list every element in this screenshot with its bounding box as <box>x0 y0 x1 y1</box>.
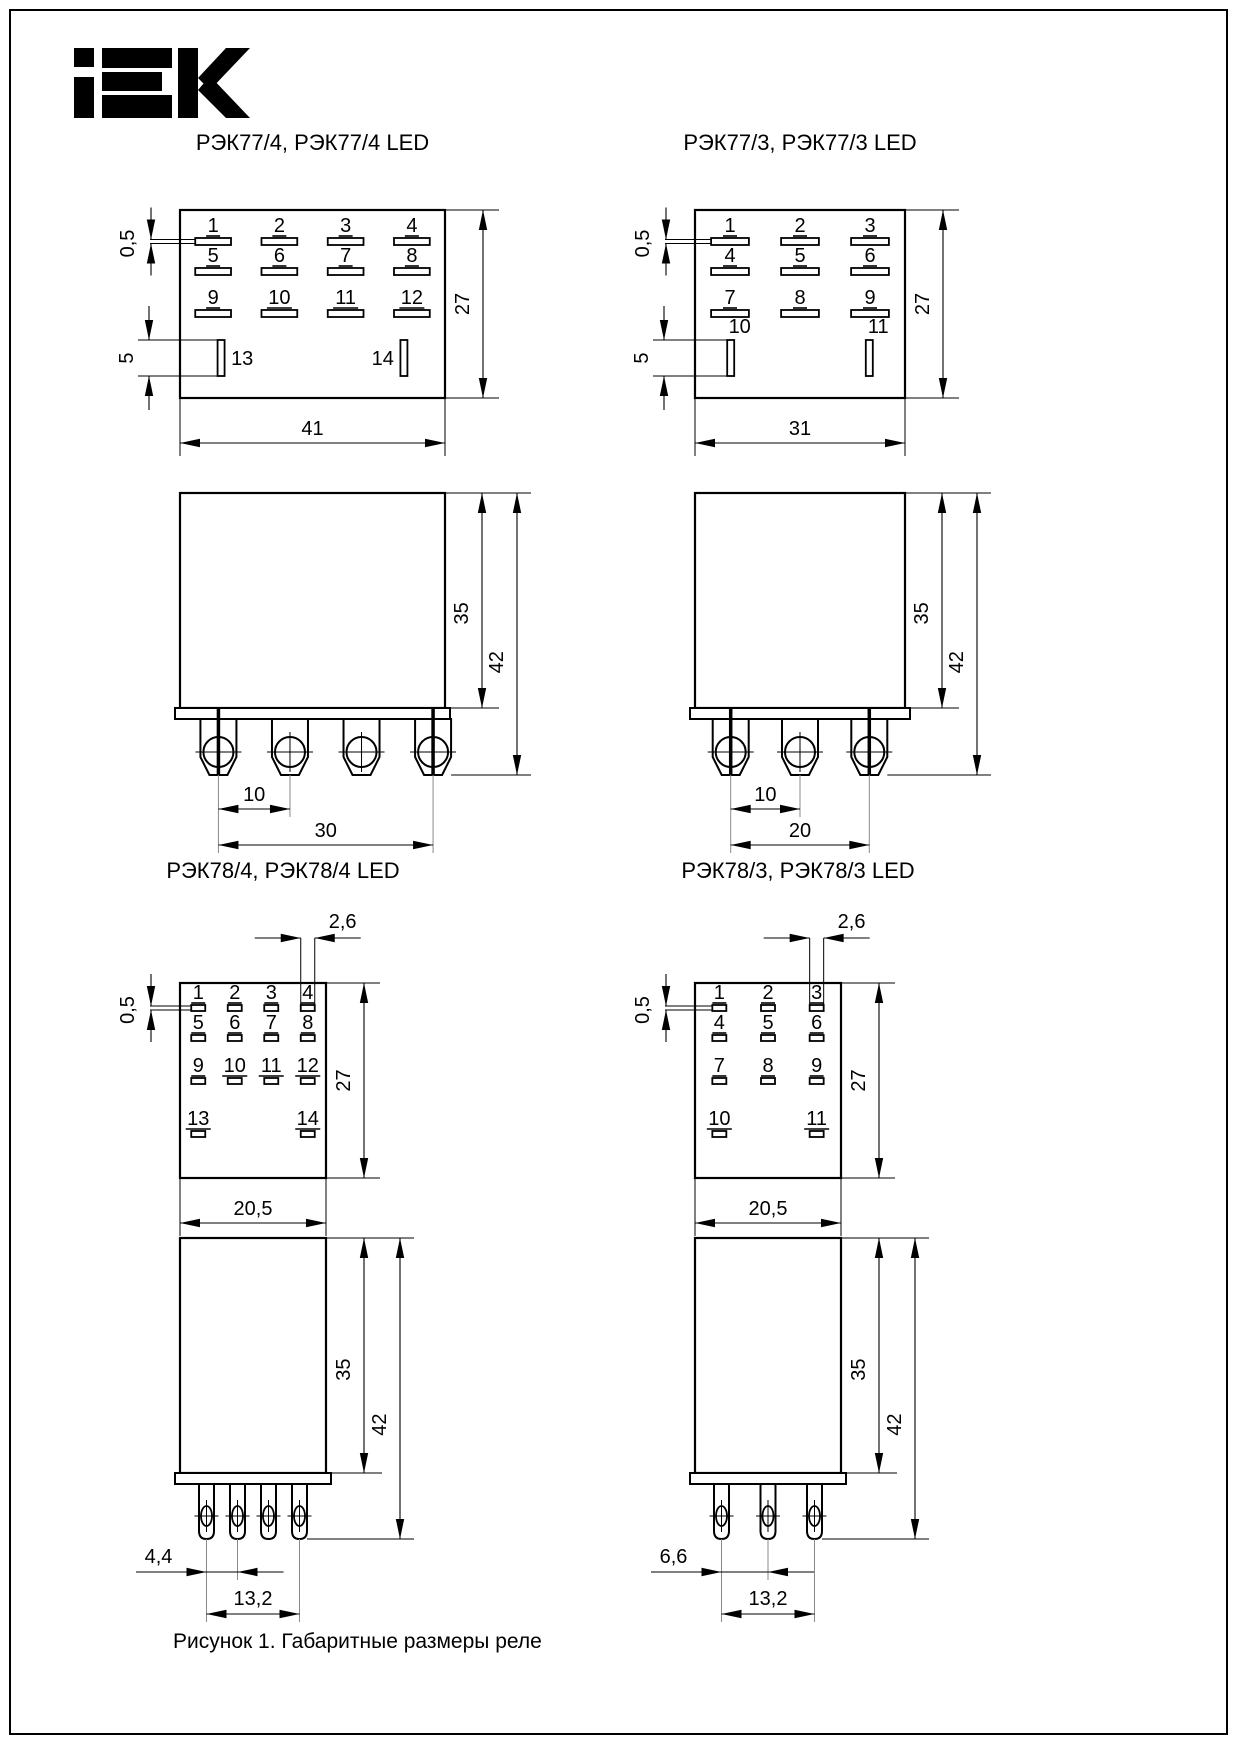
base-plate <box>175 1473 331 1484</box>
contact-slot <box>761 1078 775 1084</box>
contact-slot <box>301 1131 315 1137</box>
contact-slot <box>712 1035 726 1041</box>
dim-front-width: 20,5 <box>749 1198 788 1220</box>
contact-slot <box>261 310 297 317</box>
dimension-arrow <box>147 986 155 1006</box>
dim-front-height: 27 <box>912 293 934 315</box>
dimension-arrow <box>660 320 668 340</box>
pin-number: 7 <box>340 245 351 267</box>
dim-pin-thickness: 0,5 <box>117 996 139 1024</box>
dimension-arrow <box>360 1453 368 1473</box>
dim-terminal-pitch: 6,6 <box>660 1546 688 1568</box>
pin-number: 2 <box>794 215 805 237</box>
dimension-arrow <box>731 805 751 813</box>
dimension-arrow <box>147 220 155 240</box>
iek-logo-graphic <box>74 48 254 118</box>
pin-number: 11 <box>806 1108 827 1130</box>
dimension-arrow <box>795 1610 815 1618</box>
front-view: 12345678910111213142,60,52720,5 <box>117 911 380 1236</box>
pin-number: 4 <box>302 982 313 1004</box>
dim-pin-thickness: 0,5 <box>117 230 139 258</box>
contact-slot <box>761 1005 775 1011</box>
dim-body-height: 35 <box>911 602 933 624</box>
side-view: 35426,613,2 <box>651 1238 929 1622</box>
dimension-arrow <box>180 439 200 447</box>
dimension-arrow <box>662 986 670 1006</box>
dimension-arrow <box>187 1568 207 1576</box>
side-view: 35424,413,2 <box>136 1238 414 1622</box>
dim-pin-width: 2,6 <box>329 911 357 933</box>
contact-slot <box>195 268 231 275</box>
pin-number: 2 <box>229 982 240 1004</box>
dim-front-height: 27 <box>333 1069 355 1091</box>
dimension-arrow <box>396 1519 404 1539</box>
side-view: 35421020 <box>690 493 991 853</box>
dimension-arrow <box>281 934 301 942</box>
contact-slot <box>761 1035 775 1041</box>
dimension-arrow <box>180 1219 200 1227</box>
pin-number: 8 <box>302 1012 313 1034</box>
contact-slot <box>191 1035 205 1041</box>
dim-terminal-pitch: 10 <box>754 784 776 806</box>
pin-number: 6 <box>864 245 875 267</box>
contact-slot <box>810 1035 824 1041</box>
figure-title: РЭК78/4, РЭК78/4 LED <box>113 858 453 886</box>
dimension-arrow <box>479 210 487 230</box>
coil-pin <box>866 340 873 376</box>
side-view: 35421030 <box>175 493 531 853</box>
contact-slot <box>851 238 889 245</box>
contact-slot <box>711 268 749 275</box>
pin-number: 3 <box>811 982 822 1004</box>
contact-slot <box>191 1005 205 1011</box>
pin-number: 5 <box>193 1012 204 1034</box>
dimension-arrow <box>875 983 883 1003</box>
pin-number: 14 <box>372 348 394 370</box>
dim-terminal-pitch: 4,4 <box>145 1546 173 1568</box>
dimension-arrow <box>306 1219 326 1227</box>
contact-slot <box>394 310 430 317</box>
dimension-arrow <box>280 1610 300 1618</box>
dimension-arrow <box>478 493 486 513</box>
pin-number: 8 <box>762 1055 773 1077</box>
contact-slot <box>261 268 297 275</box>
contact-slot <box>712 1005 726 1011</box>
dimension-arrow <box>360 1238 368 1258</box>
dim-total-height: 42 <box>486 651 508 673</box>
contact-slot <box>301 1078 315 1084</box>
dimension-arrow <box>360 1158 368 1178</box>
pin-number: 13 <box>187 1108 209 1130</box>
base-plate <box>175 708 450 719</box>
contact-slot <box>328 238 364 245</box>
pin-number: 1 <box>714 982 725 1004</box>
dim-terminal-span: 13,2 <box>234 1588 273 1610</box>
dimension-arrow <box>938 493 946 513</box>
dimension-arrow <box>147 244 155 264</box>
coil-pin <box>218 340 225 376</box>
contact-slot <box>228 1005 242 1011</box>
contact-slot <box>301 1005 315 1011</box>
contact-slot <box>810 1005 824 1011</box>
dimension-arrow <box>662 1010 670 1030</box>
contact-slot <box>191 1131 205 1137</box>
coil-pin <box>400 340 407 376</box>
dimension-arrow <box>722 1610 742 1618</box>
dimension-arrow <box>513 755 521 775</box>
figure-title: РЭК77/4, РЭК77/4 LED <box>143 130 483 158</box>
contact-slot <box>195 310 231 317</box>
dimension-arrow <box>695 1219 715 1227</box>
dimension-arrow <box>478 688 486 708</box>
dim-terminal-span: 30 <box>315 820 337 842</box>
pin-number: 8 <box>406 245 417 267</box>
coil-pin <box>727 340 734 376</box>
dim-front-width: 31 <box>789 418 811 440</box>
dimension-arrow <box>824 934 844 942</box>
dimension-arrow <box>875 1453 883 1473</box>
dimension-arrow <box>360 983 368 1003</box>
dimension-arrow <box>238 1568 258 1576</box>
dimension-arrow <box>207 1610 227 1618</box>
pin-number: 7 <box>714 1055 725 1077</box>
pin-number: 7 <box>266 1012 277 1034</box>
dimension-arrow <box>662 220 670 240</box>
contact-slot <box>328 268 364 275</box>
contact-slot <box>264 1005 278 1011</box>
pin-number: 10 <box>268 287 290 309</box>
contact-slot <box>261 238 297 245</box>
dimension-arrow <box>695 439 715 447</box>
dim-bottom-pin-length: 5 <box>631 352 653 363</box>
contact-slot <box>228 1078 242 1084</box>
pin-number: 2 <box>762 982 773 1004</box>
contact-slot <box>712 1131 726 1137</box>
dim-total-height: 42 <box>369 1413 391 1435</box>
dim-body-height: 35 <box>451 602 473 624</box>
pin-number: 13 <box>231 348 253 370</box>
dim-body-height: 35 <box>848 1358 870 1380</box>
dimension-arrow <box>315 934 335 942</box>
front-view: 12345678910110,552731 <box>631 208 959 457</box>
datasheet-page: РЭК77/4, РЭК77/4 LED 1234567891011121314… <box>0 0 1237 1744</box>
relay-body-outline <box>180 493 445 708</box>
dim-total-height: 42 <box>884 1413 906 1435</box>
pin-number: 6 <box>229 1012 240 1034</box>
pin-number: 10 <box>729 316 751 338</box>
dim-pin-width: 2,6 <box>838 911 866 933</box>
dimension-arrow <box>875 1158 883 1178</box>
contact-slot <box>228 1035 242 1041</box>
figure-title: РЭК77/3, РЭК77/3 LED <box>630 130 970 158</box>
pin-number: 3 <box>340 215 351 237</box>
figure-rek77-3: РЭК77/3, РЭК77/3 LED 12345678910110,5527… <box>585 130 1105 860</box>
figure-drawing-rek78-4: 12345678910111213142,60,52720,535424,413… <box>70 888 590 1638</box>
contact-slot <box>781 268 819 275</box>
pin-number: 11 <box>335 287 356 309</box>
dimension-arrow <box>145 376 153 396</box>
pin-number: 10 <box>708 1108 730 1130</box>
dimension-arrow <box>939 378 947 398</box>
contact-slot <box>264 1035 278 1041</box>
dimension-arrow <box>973 493 981 513</box>
dim-bottom-pin-length: 5 <box>116 352 138 363</box>
dimension-arrow <box>145 320 153 340</box>
dimension-arrow <box>513 493 521 513</box>
dimension-arrow <box>911 1519 919 1539</box>
pin-number: 11 <box>261 1055 282 1077</box>
contact-slot <box>851 268 889 275</box>
base-plate <box>690 1473 846 1484</box>
contact-slot <box>264 1078 278 1084</box>
contact-slot <box>191 1078 205 1084</box>
pin-number: 14 <box>297 1108 319 1130</box>
contact-slot <box>810 1078 824 1084</box>
dimension-arrow <box>973 755 981 775</box>
dimension-arrow <box>731 841 751 849</box>
pin-number: 9 <box>193 1055 204 1077</box>
dimension-arrow <box>849 841 869 849</box>
pin-number: 12 <box>401 287 423 309</box>
relay-body-outline <box>695 1238 841 1473</box>
pin-number: 5 <box>208 245 219 267</box>
dim-front-height: 27 <box>452 293 474 315</box>
dimension-arrow <box>413 841 433 849</box>
figure-drawing-rek78-3: 12345678910112,60,52720,535426,613,2 <box>585 888 1105 1638</box>
pin-number: 9 <box>208 287 219 309</box>
dim-front-width: 20,5 <box>234 1198 273 1220</box>
figure-caption: Рисунок 1. Габаритные размеры реле <box>173 1630 542 1654</box>
iek-logo <box>74 48 254 123</box>
figure-drawing-rek77-4: 12345678910111213140,55274135421030 <box>70 160 590 860</box>
dim-terminal-span: 13,2 <box>749 1588 788 1610</box>
relay-body-outline <box>695 493 905 708</box>
dimension-arrow <box>702 1568 722 1576</box>
pin-number: 1 <box>208 215 219 237</box>
dim-pin-thickness: 0,5 <box>632 230 654 258</box>
dimension-arrow <box>821 1219 841 1227</box>
pin-number: 9 <box>864 287 875 309</box>
front-view: 12345678910111213140,552741 <box>116 208 499 457</box>
dimension-arrow <box>911 1238 919 1258</box>
contact-slot <box>301 1035 315 1041</box>
pin-number: 3 <box>864 215 875 237</box>
contact-slot <box>394 268 430 275</box>
pin-number: 12 <box>297 1055 319 1077</box>
dim-front-width: 41 <box>301 418 323 440</box>
figure-drawing-rek77-3: 12345678910110,55273135421020 <box>585 160 1105 860</box>
dimension-arrow <box>875 1238 883 1258</box>
contact-slot <box>712 1078 726 1084</box>
figure-rek78-4: РЭК78/4, РЭК78/4 LED 1234567891011121314… <box>70 858 590 1638</box>
pin-number: 1 <box>193 982 204 1004</box>
dimension-arrow <box>660 376 668 396</box>
pin-number: 3 <box>266 982 277 1004</box>
dimension-arrow <box>938 688 946 708</box>
pin-number: 2 <box>274 215 285 237</box>
pin-number: 5 <box>762 1012 773 1034</box>
dim-front-height: 27 <box>848 1069 870 1091</box>
pin-number: 6 <box>811 1012 822 1034</box>
pin-number: 7 <box>724 287 735 309</box>
pin-number: 9 <box>811 1055 822 1077</box>
contact-slot <box>781 238 819 245</box>
dimension-arrow <box>218 841 238 849</box>
contact-slot <box>394 238 430 245</box>
figure-rek78-3: РЭК78/3, РЭК78/3 LED 12345678910112,60,5… <box>585 858 1105 1638</box>
contact-slot <box>711 238 749 245</box>
dimension-arrow <box>939 210 947 230</box>
dimension-arrow <box>790 934 810 942</box>
base-plate <box>690 708 910 719</box>
dimension-arrow <box>218 805 238 813</box>
pin-number: 8 <box>794 287 805 309</box>
dim-total-height: 42 <box>946 651 968 673</box>
dimension-arrow <box>425 439 445 447</box>
pin-number: 4 <box>406 215 417 237</box>
contact-slot <box>810 1131 824 1137</box>
relay-body-outline <box>180 1238 326 1473</box>
figure-rek77-4: РЭК77/4, РЭК77/4 LED 1234567891011121314… <box>70 130 590 860</box>
dim-terminal-pitch: 10 <box>243 784 265 806</box>
contact-slot <box>781 310 819 317</box>
pin-number: 11 <box>868 316 889 338</box>
dimension-arrow <box>662 244 670 264</box>
pin-number: 5 <box>794 245 805 267</box>
dim-terminal-span: 20 <box>789 820 811 842</box>
dimension-arrow <box>768 1568 788 1576</box>
figure-title: РЭК78/3, РЭК78/3 LED <box>628 858 968 886</box>
dim-pin-thickness: 0,5 <box>632 996 654 1024</box>
contact-slot <box>195 238 231 245</box>
pin-number: 10 <box>224 1055 246 1077</box>
dimension-arrow <box>396 1238 404 1258</box>
dim-body-height: 35 <box>333 1358 355 1380</box>
pin-number: 4 <box>714 1012 725 1034</box>
dimension-arrow <box>885 439 905 447</box>
dimension-arrow <box>479 378 487 398</box>
dimension-arrow <box>780 805 800 813</box>
dimension-arrow <box>270 805 290 813</box>
pin-number: 1 <box>724 215 735 237</box>
front-view: 12345678910112,60,52720,5 <box>632 911 895 1236</box>
contact-slot <box>328 310 364 317</box>
dimension-arrow <box>147 1010 155 1030</box>
pin-number: 4 <box>724 245 735 267</box>
pin-number: 6 <box>274 245 285 267</box>
